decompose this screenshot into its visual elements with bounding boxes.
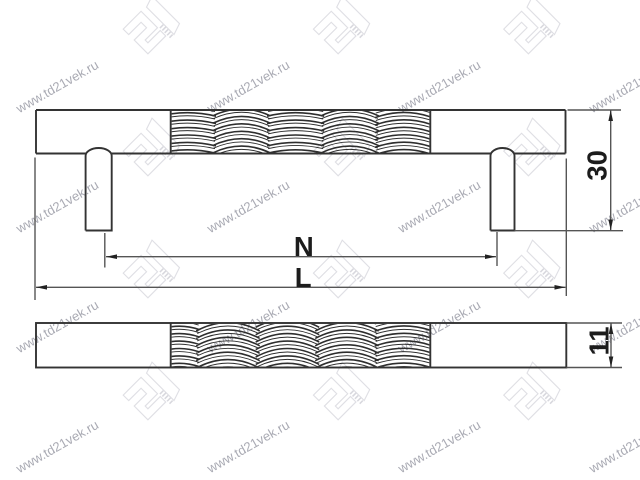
svg-text:11: 11 [583,326,614,355]
svg-text:N: N [294,231,314,262]
svg-text:30: 30 [582,150,613,181]
svg-text:L: L [295,262,312,293]
